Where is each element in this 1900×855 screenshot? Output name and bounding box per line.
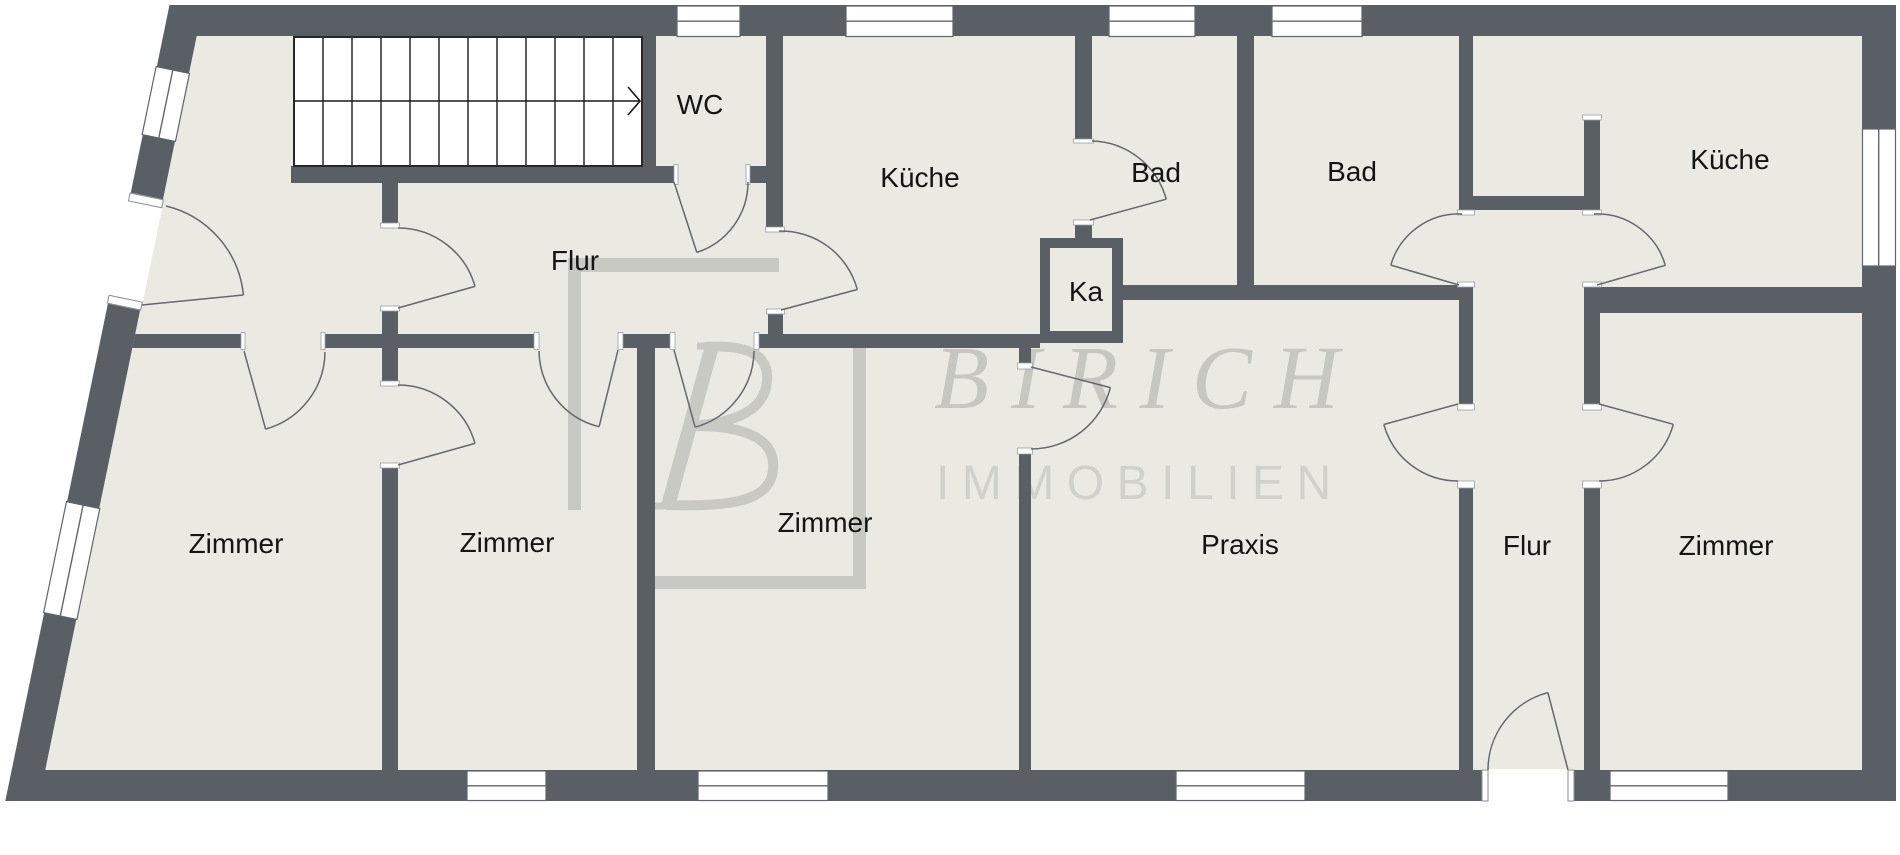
svg-text:Bad: Bad: [1327, 156, 1377, 187]
svg-text:Bad: Bad: [1131, 157, 1181, 188]
svg-text:Küche: Küche: [880, 162, 959, 193]
svg-text:Ka: Ka: [1069, 276, 1104, 307]
svg-text:IMMOBILIEN: IMMOBILIEN: [936, 457, 1344, 510]
svg-text:Zimmer: Zimmer: [189, 528, 284, 559]
svg-text:WC: WC: [677, 89, 724, 120]
svg-text:Küche: Küche: [1690, 144, 1769, 175]
svg-text:Zimmer: Zimmer: [778, 507, 873, 538]
svg-text:Zimmer: Zimmer: [1679, 530, 1774, 561]
svg-text:Praxis: Praxis: [1201, 529, 1279, 560]
svg-text:Zimmer: Zimmer: [460, 527, 555, 558]
svg-text:Flur: Flur: [551, 245, 599, 276]
svg-text:Flur: Flur: [1503, 530, 1551, 561]
